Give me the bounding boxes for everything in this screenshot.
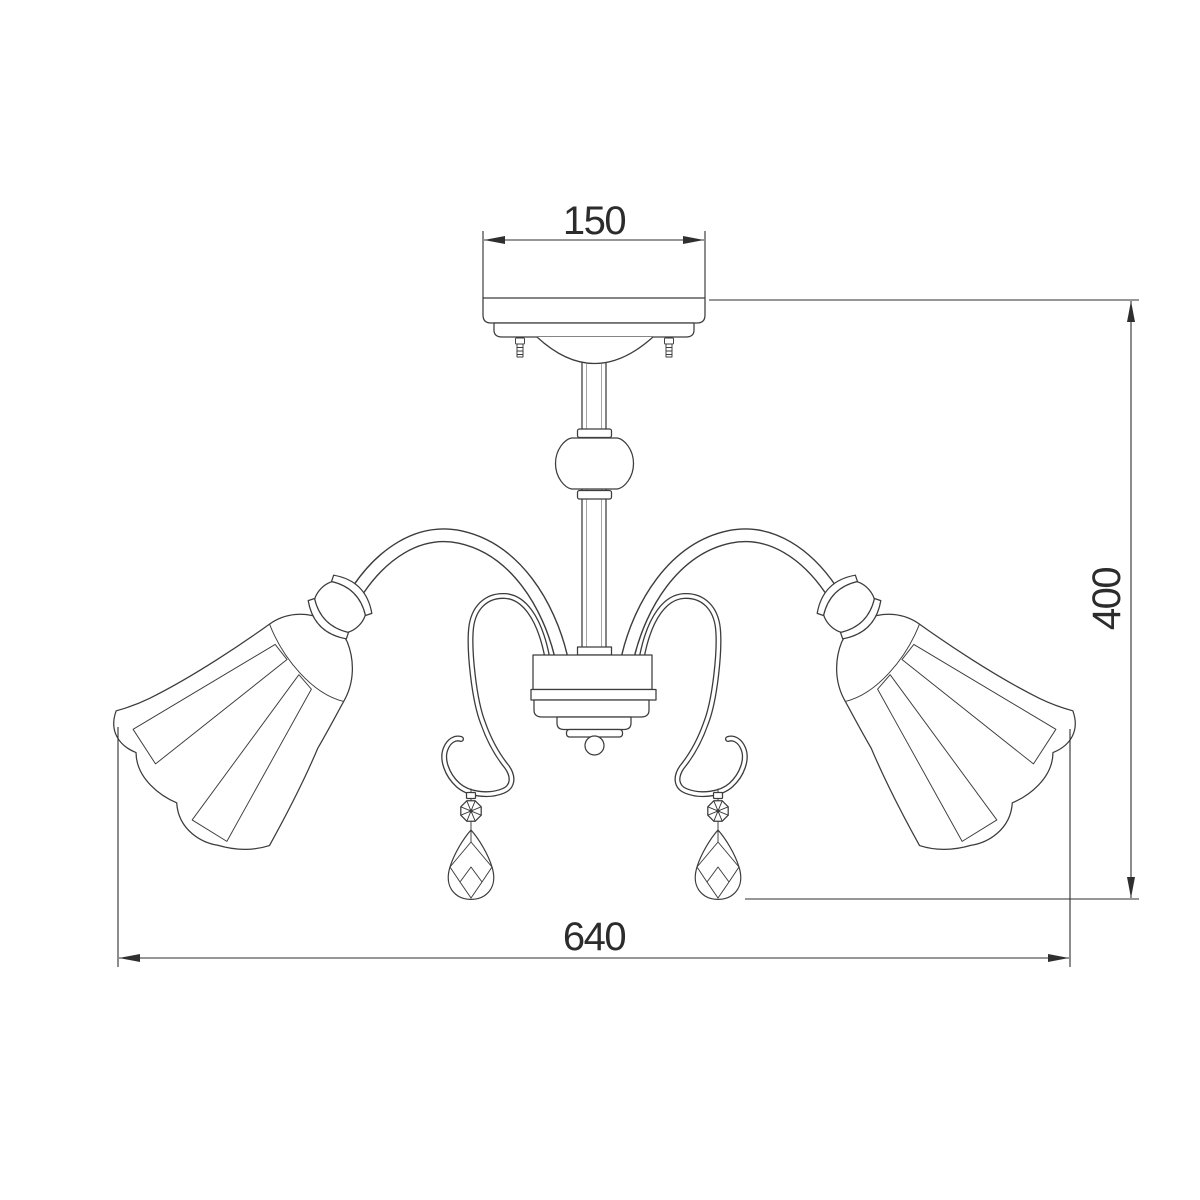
center-stem xyxy=(556,362,634,652)
hub-finial-ball xyxy=(585,736,604,755)
mounting-screw-right xyxy=(665,338,674,357)
arrowhead-left xyxy=(119,954,140,962)
arrowhead-left xyxy=(484,236,505,244)
hub-band xyxy=(531,690,656,701)
hub-cylinder xyxy=(533,655,652,690)
chandelier-side-assembly xyxy=(90,535,561,899)
stem-collar-bottom xyxy=(578,491,612,500)
arrowhead-bottom xyxy=(1127,877,1135,898)
arrowhead-right xyxy=(683,236,704,244)
pendant-octagon-bead xyxy=(461,801,481,821)
stem-collar-top xyxy=(578,429,612,438)
crystal-stem-bead xyxy=(556,438,634,489)
dimension-label-top-width: 150 xyxy=(563,199,625,243)
crystal-pendant-left xyxy=(448,789,493,899)
curved-arm-left xyxy=(358,535,561,656)
chandelier-technical-drawing: 150 400 640 xyxy=(0,0,1200,1200)
center-hub xyxy=(531,647,656,755)
arrowhead-top xyxy=(1127,301,1135,322)
dimension-label-right-height: 400 xyxy=(1085,568,1129,630)
canopy-dome xyxy=(537,337,653,364)
hub-flange xyxy=(578,647,612,655)
mounting-screw-left xyxy=(516,338,525,357)
ceiling-canopy xyxy=(483,298,705,364)
dimension-label-bottom-width: 640 xyxy=(563,915,625,959)
dimension-top-width: 150 xyxy=(483,199,705,298)
technical-drawing-page: 150 400 640 xyxy=(0,0,1200,1200)
chandelier-side-assembly-right xyxy=(628,535,1099,899)
arrowhead-right xyxy=(1048,954,1069,962)
pendant-teardrop-crystal xyxy=(448,830,493,899)
